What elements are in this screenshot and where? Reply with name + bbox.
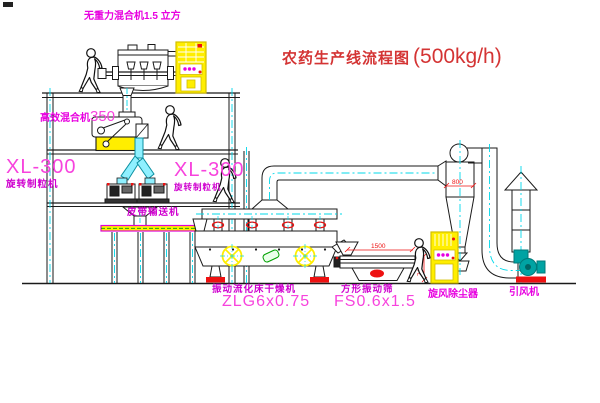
control-cabinet-upper <box>176 42 206 93</box>
induced-draft-fan <box>514 250 546 283</box>
person-icon <box>213 159 236 203</box>
control-cabinet-lower <box>431 232 458 283</box>
belt-conveyor <box>101 226 200 232</box>
conveyor-supports <box>112 232 195 283</box>
svg-text:1500: 1500 <box>371 243 386 250</box>
corner-artifact <box>3 2 13 7</box>
fan-base <box>516 277 546 283</box>
flow-diagram-canvas: 800 <box>0 0 600 403</box>
fan-motor <box>537 261 545 273</box>
fluid-bed-dryer <box>193 209 350 283</box>
exhaust-duct <box>252 166 446 209</box>
person-icon <box>158 106 181 150</box>
granulator-discharge-chute <box>123 207 157 226</box>
granulator-right <box>137 178 169 203</box>
granulator-left <box>105 178 137 203</box>
indicator-red-square <box>198 44 203 48</box>
svg-text:800: 800 <box>452 179 463 186</box>
sieve-motor <box>370 270 384 278</box>
process-flow-drawing: 800 <box>0 0 600 403</box>
